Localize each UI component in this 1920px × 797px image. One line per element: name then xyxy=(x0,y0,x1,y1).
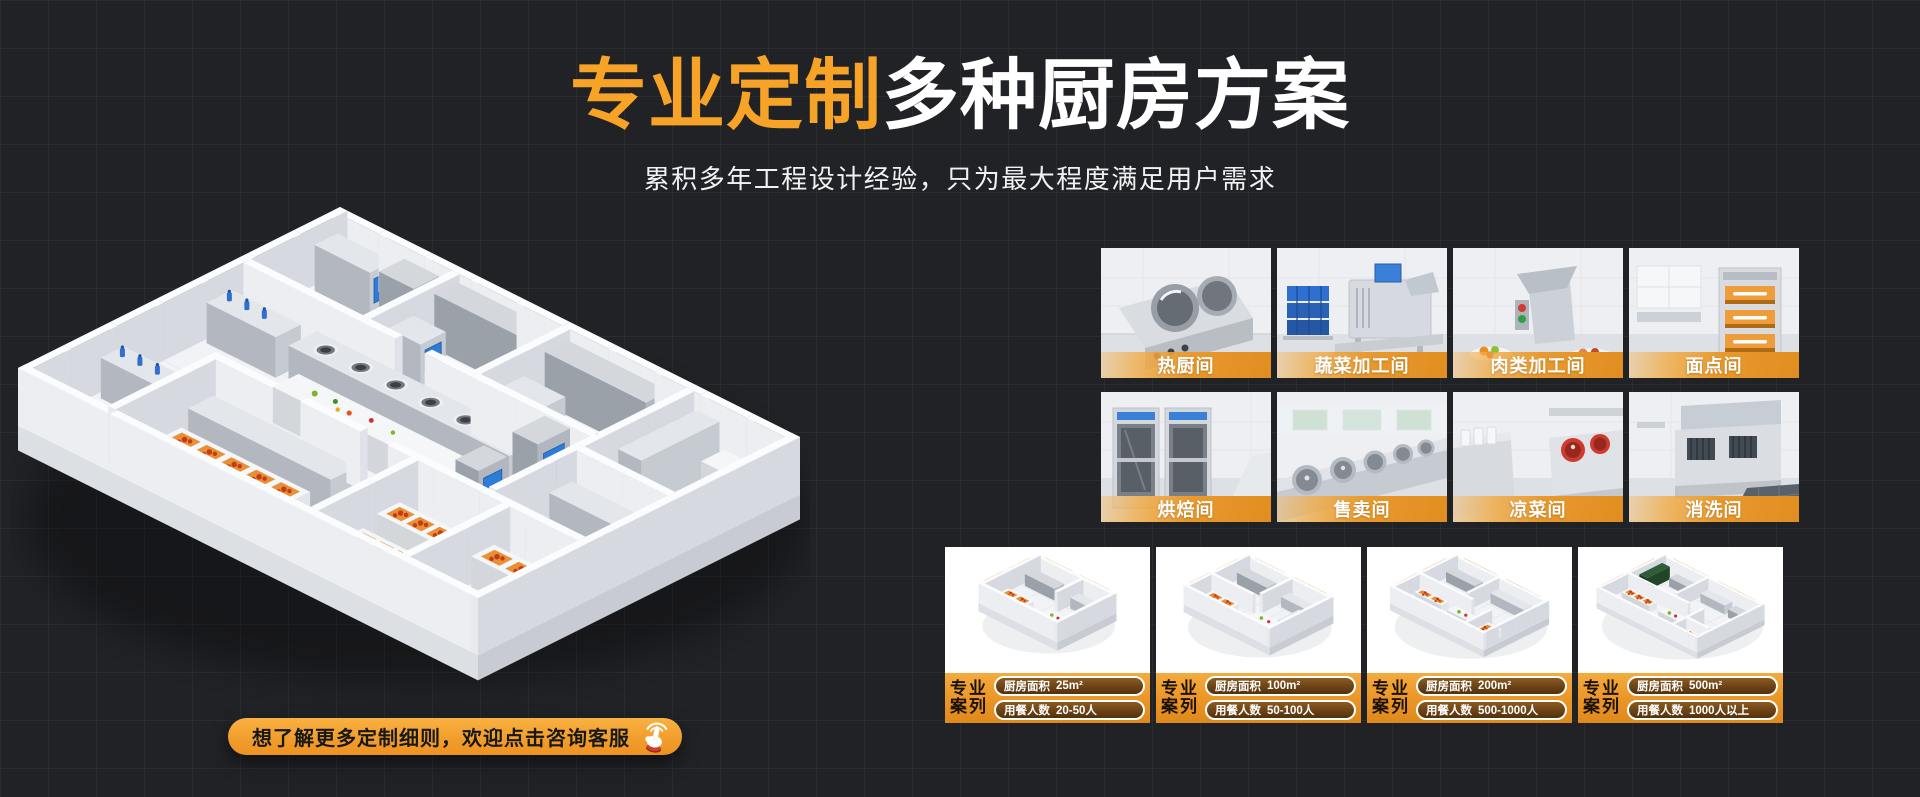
room-tile-cold-dish: 凉菜间 xyxy=(1453,392,1623,522)
case-footer: 专业案列 厨房面积25m² 用餐人数20-50人 xyxy=(945,673,1150,723)
case-footer: 专业案列 厨房面积500m² 用餐人数1000人以上 xyxy=(1578,673,1783,723)
case-footer: 专业案列 厨房面积100m² 用餐人数50-100人 xyxy=(1156,673,1361,723)
room-tile-serving: 售卖间 xyxy=(1277,392,1447,522)
case-badge: 专业案列 xyxy=(1583,680,1621,716)
click-hand-icon xyxy=(638,720,672,754)
room-tile-baking: 烘焙间 xyxy=(1101,392,1271,522)
kitchen-floorplan-3d xyxy=(10,195,810,747)
kitchen-solutions-banner: 专业定制多种厨房方案 累积多年工程设计经验，只为最大程度满足用户需求 热厨间 xyxy=(0,0,1920,797)
diners-pill: 用餐人数50-100人 xyxy=(1205,700,1356,720)
case-specs: 厨房面积25m² 用餐人数20-50人 xyxy=(994,676,1145,720)
room-tile-dishwashing: 消洗间 xyxy=(1629,392,1799,522)
case-specs: 厨房面积200m² 用餐人数500-1000人 xyxy=(1416,676,1567,720)
diners-pill: 用餐人数500-1000人 xyxy=(1416,700,1567,720)
room-tile-meat-processing: 肉类加工间 xyxy=(1453,248,1623,378)
room-label: 消洗间 xyxy=(1629,496,1799,522)
diners-pill: 用餐人数1000人以上 xyxy=(1627,700,1778,720)
kitchen-area-pill: 厨房面积25m² xyxy=(994,676,1145,696)
room-label: 凉菜间 xyxy=(1453,496,1623,522)
case-footer: 专业案列 厨房面积200m² 用餐人数500-1000人 xyxy=(1367,673,1572,723)
room-label: 肉类加工间 xyxy=(1453,352,1623,378)
case-card-row: 专业案列 厨房面积25m² 用餐人数20-50人 专业案列 厨房面积100m² … xyxy=(945,547,1783,723)
kitchen-area-pill: 厨房面积500m² xyxy=(1627,676,1778,696)
case-floorplan-photo xyxy=(1578,547,1783,673)
case-badge: 专业案列 xyxy=(1372,680,1410,716)
room-label: 面点间 xyxy=(1629,352,1799,378)
case-card-500: 专业案列 厨房面积500m² 用餐人数1000人以上 xyxy=(1578,547,1783,723)
consult-cta-button[interactable]: 想了解更多定制细则，欢迎点击咨询客服 xyxy=(228,718,682,755)
case-floorplan-photo xyxy=(1367,547,1572,673)
room-tile-vegetable-processing: 蔬菜加工间 xyxy=(1277,248,1447,378)
room-label: 烘焙间 xyxy=(1101,496,1271,522)
case-floorplan-photo xyxy=(1156,547,1361,673)
case-card-100: 专业案列 厨房面积100m² 用餐人数50-100人 xyxy=(1156,547,1361,723)
room-tile-pastry: 面点间 xyxy=(1629,248,1799,378)
cta-label: 想了解更多定制细则，欢迎点击咨询客服 xyxy=(252,722,630,751)
hero-header: 专业定制多种厨房方案 累积多年工程设计经验，只为最大程度满足用户需求 xyxy=(0,58,1920,196)
case-badge: 专业案列 xyxy=(950,680,988,716)
floorplan-illustration xyxy=(10,195,810,747)
room-label: 蔬菜加工间 xyxy=(1277,352,1447,378)
case-card-200: 专业案列 厨房面积200m² 用餐人数500-1000人 xyxy=(1367,547,1572,723)
title-rest: 多种厨房方案 xyxy=(882,53,1350,139)
case-specs: 厨房面积100m² 用餐人数50-100人 xyxy=(1205,676,1356,720)
room-tile-hot-kitchen: 热厨间 xyxy=(1101,248,1271,378)
case-badge: 专业案列 xyxy=(1161,680,1199,716)
kitchen-area-pill: 厨房面积200m² xyxy=(1416,676,1567,696)
room-label: 热厨间 xyxy=(1101,352,1271,378)
title-highlight: 专业定制 xyxy=(570,53,882,139)
page-subtitle: 累积多年工程设计经验，只为最大程度满足用户需求 xyxy=(0,159,1920,196)
case-specs: 厨房面积500m² 用餐人数1000人以上 xyxy=(1627,676,1778,720)
diners-pill: 用餐人数20-50人 xyxy=(994,700,1145,720)
case-card-25: 专业案列 厨房面积25m² 用餐人数20-50人 xyxy=(945,547,1150,723)
room-type-grid: 热厨间 蔬菜加工间 xyxy=(1101,248,1799,522)
room-label: 售卖间 xyxy=(1277,496,1447,522)
kitchen-area-pill: 厨房面积100m² xyxy=(1205,676,1356,696)
page-title: 专业定制多种厨房方案 xyxy=(0,58,1920,135)
case-floorplan-photo xyxy=(945,547,1150,673)
